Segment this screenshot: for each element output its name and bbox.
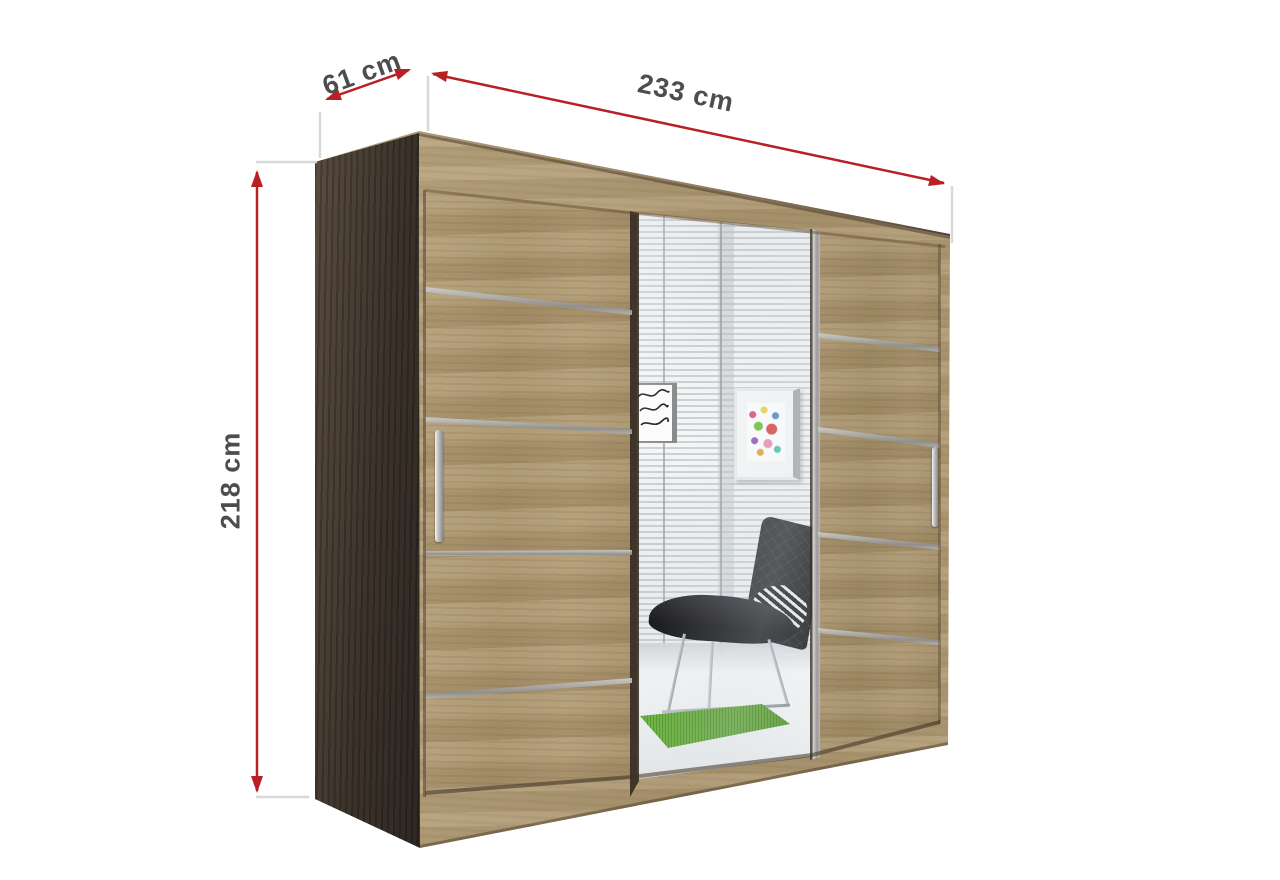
dimension-lines-overlay — [0, 0, 1280, 880]
height-dimension-label: 218 cm — [216, 411, 247, 551]
wardrobe-dimensions-figure: 233 cm 61 cm 218 cm — [0, 0, 1280, 880]
height-dimension-arrow-icon — [251, 170, 263, 793]
extension-lines — [256, 76, 952, 797]
